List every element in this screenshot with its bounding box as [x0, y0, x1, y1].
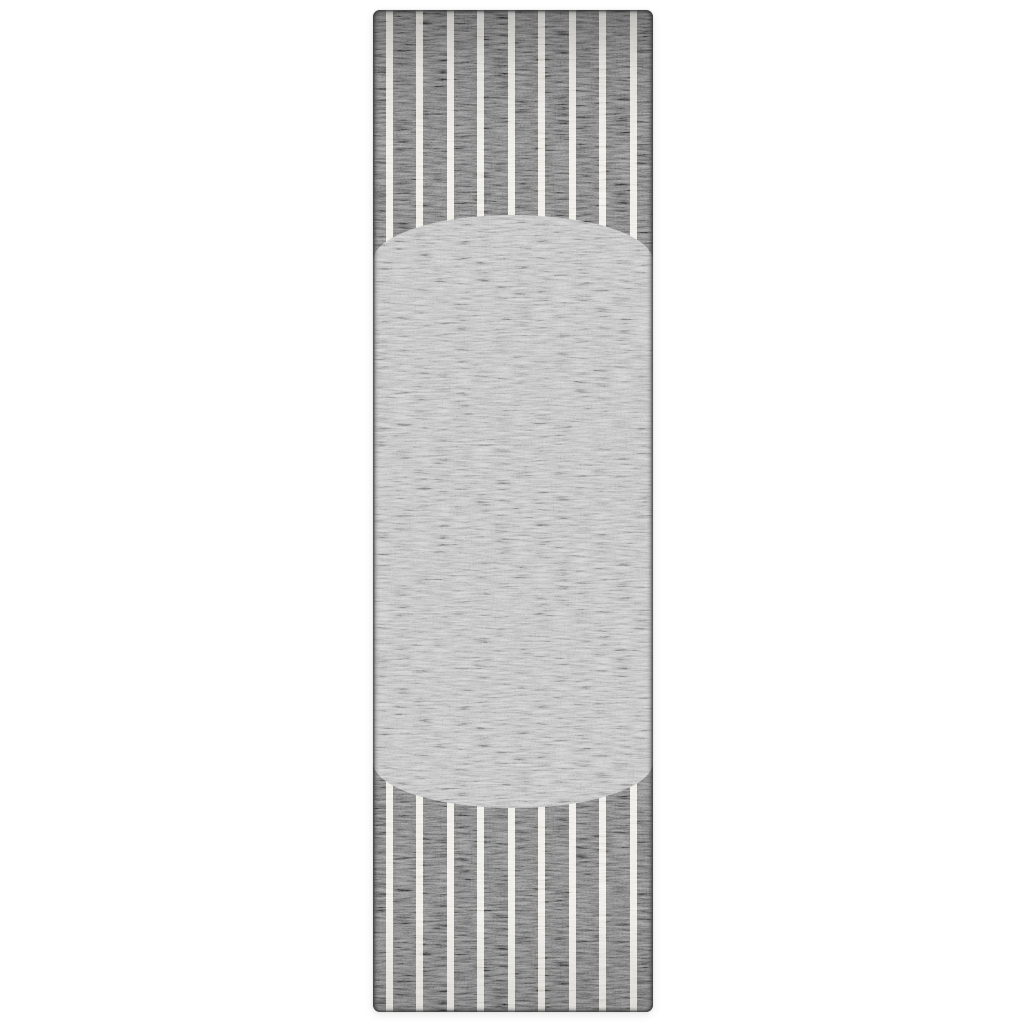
- striped-runner-rug: [373, 10, 653, 1012]
- photo-canvas: [0, 0, 1024, 1024]
- oval-medallion: [373, 215, 653, 808]
